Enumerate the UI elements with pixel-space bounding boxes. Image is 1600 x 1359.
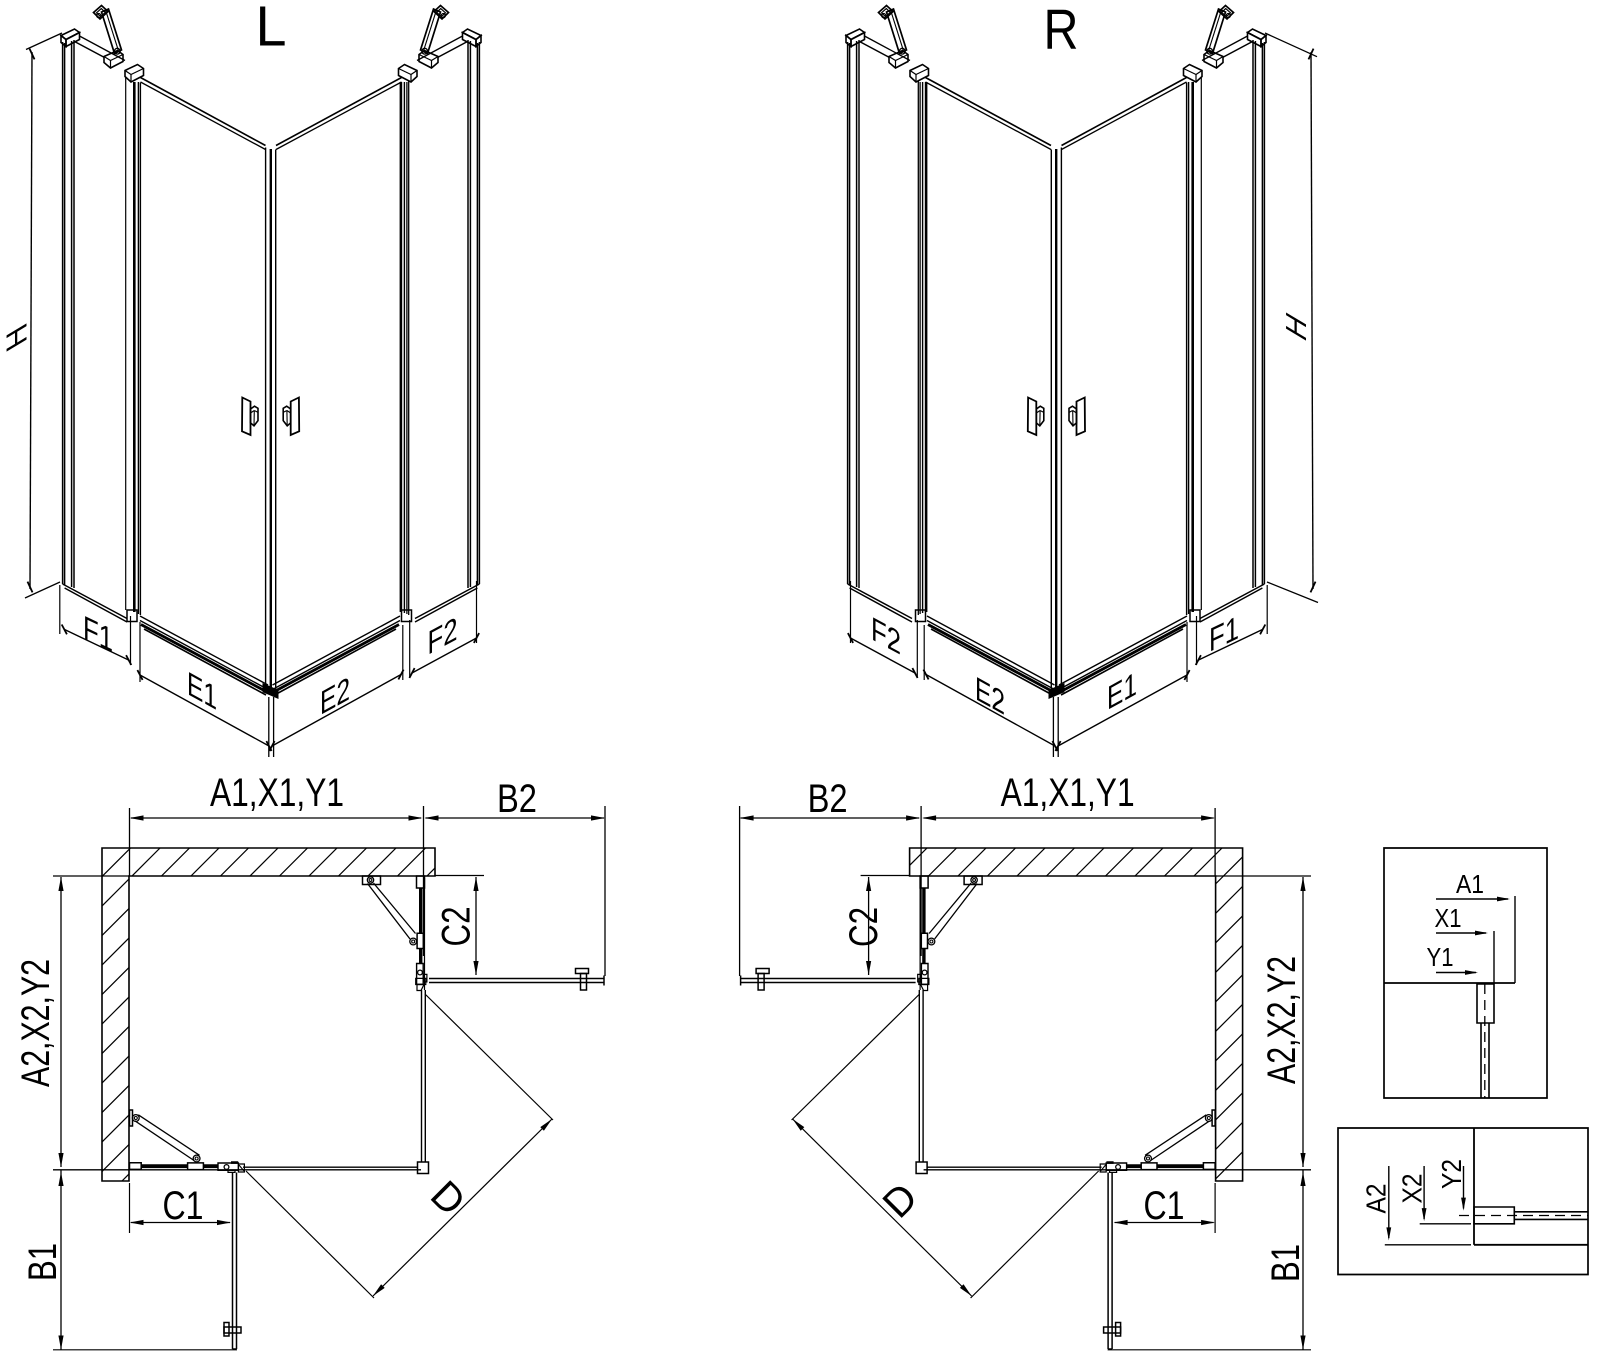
svg-text:X2: X2 — [1397, 1174, 1428, 1204]
svg-text:A2: A2 — [1361, 1184, 1392, 1214]
svg-text:X1: X1 — [1435, 903, 1462, 933]
svg-text:A1,X1,Y1: A1,X1,Y1 — [1001, 771, 1135, 815]
svg-text:R: R — [1044, 0, 1079, 62]
svg-text:Y1: Y1 — [1427, 942, 1454, 972]
svg-text:C1: C1 — [1144, 1184, 1185, 1228]
svg-text:L: L — [256, 0, 287, 59]
svg-text:B2: B2 — [808, 777, 848, 821]
svg-text:A2,X2,Y2: A2,X2,Y2 — [14, 959, 58, 1087]
svg-text:A1,X1,Y1: A1,X1,Y1 — [210, 771, 344, 815]
svg-text:A2,X2,Y2: A2,X2,Y2 — [1260, 956, 1304, 1084]
svg-text:B1: B1 — [1264, 1244, 1308, 1282]
svg-text:B1: B1 — [21, 1243, 65, 1281]
svg-text:C1: C1 — [163, 1184, 204, 1228]
svg-text:C2: C2 — [842, 907, 886, 947]
svg-text:C2: C2 — [435, 907, 479, 947]
svg-text:Y2: Y2 — [1436, 1159, 1467, 1189]
svg-text:B2: B2 — [497, 777, 537, 821]
svg-text:A1: A1 — [1456, 869, 1484, 899]
